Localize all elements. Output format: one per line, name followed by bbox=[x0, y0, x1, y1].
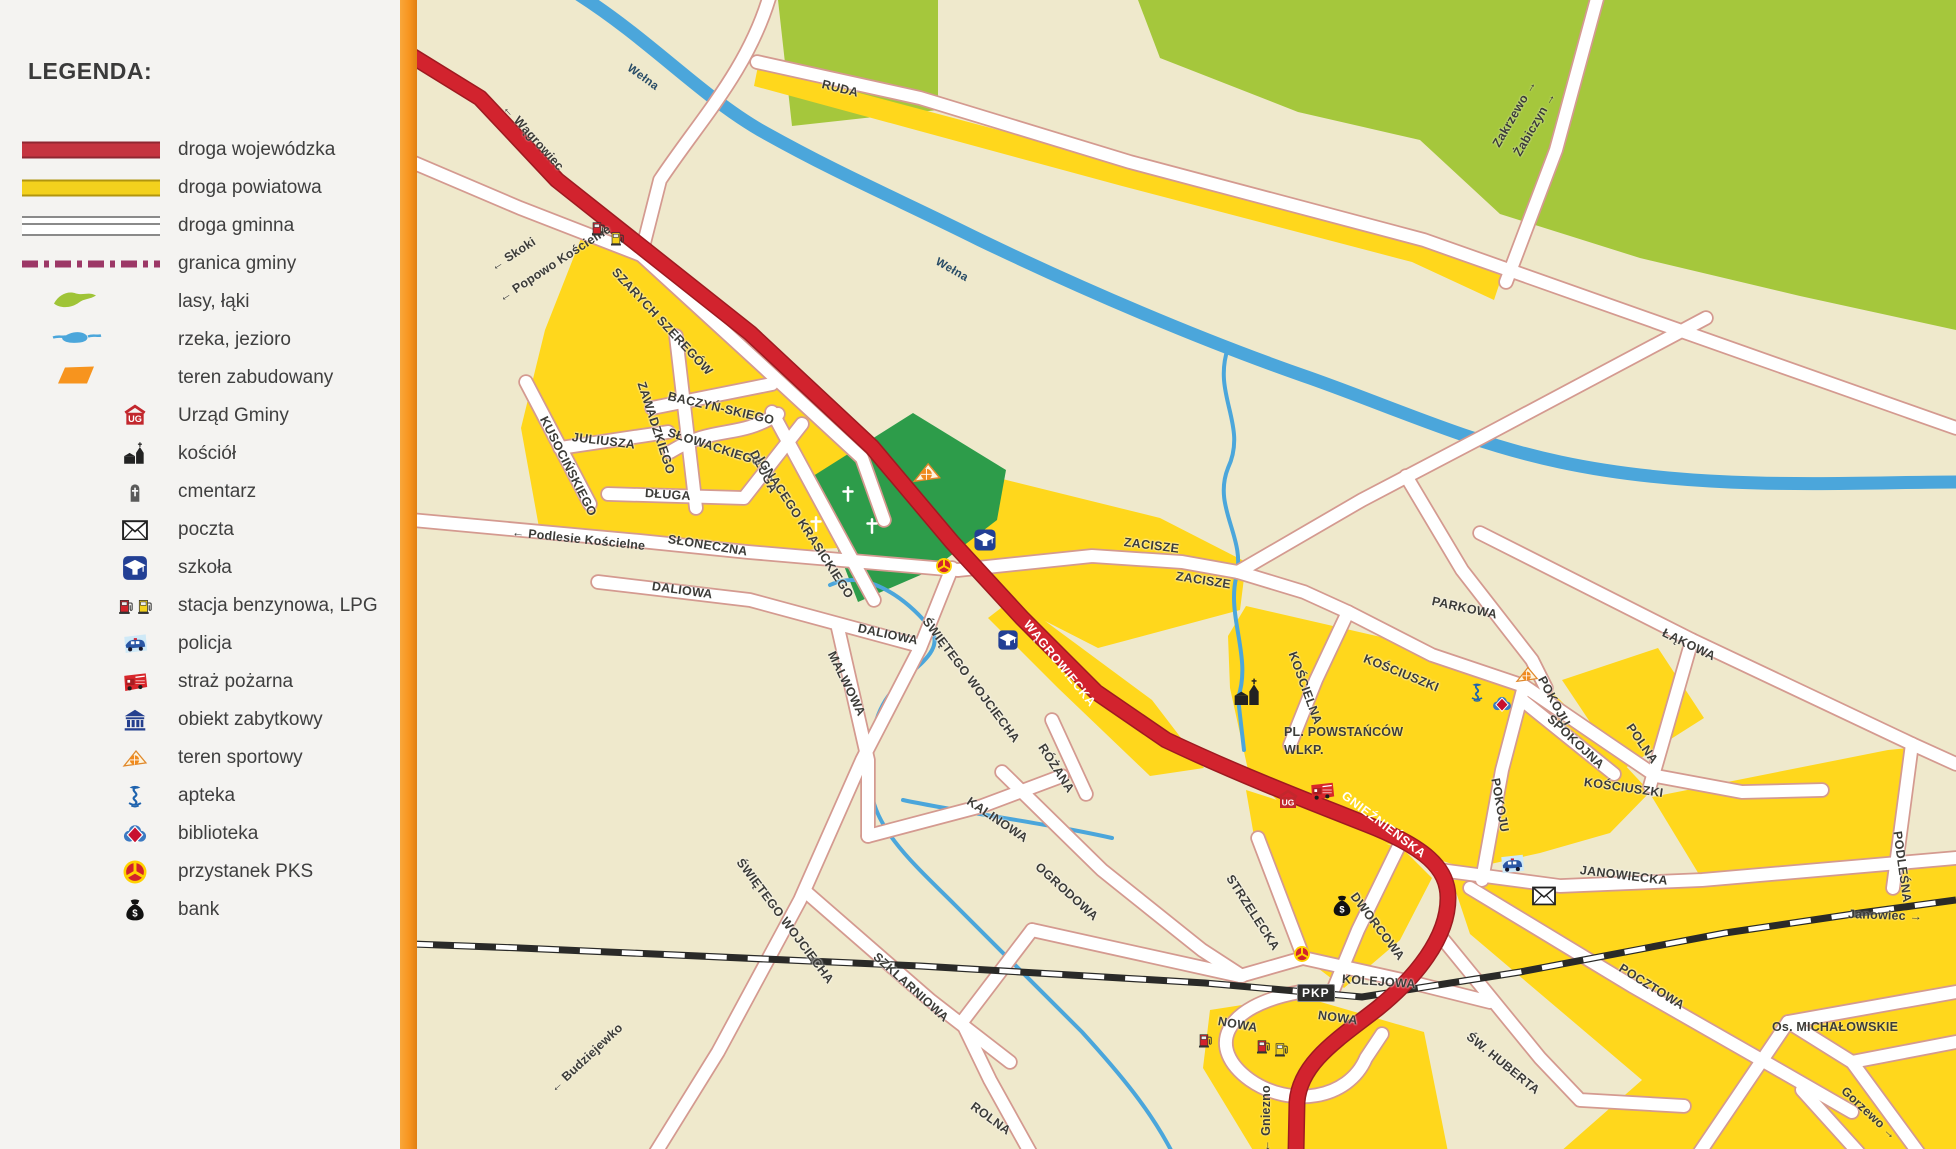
legend-item-label: bank bbox=[178, 899, 219, 921]
legend-item-label: Urząd Gminy bbox=[178, 405, 289, 427]
legend-item-policja: policja bbox=[0, 629, 400, 659]
map-edge-border bbox=[400, 0, 417, 1149]
road-powiatowa-swatch bbox=[22, 180, 160, 197]
swatch-water bbox=[52, 325, 102, 356]
legend-item-label: lasy, łąki bbox=[178, 291, 249, 313]
legend-item-ko-ci-: kościół bbox=[0, 439, 400, 469]
legend-item-label: stacja benzynowa, LPG bbox=[178, 595, 378, 617]
legend-item-label: obiekt zabytkowy bbox=[178, 709, 323, 731]
school-icon bbox=[118, 553, 152, 583]
legend-item-label: teren zabudowany bbox=[178, 367, 333, 389]
legend-item-label: apteka bbox=[178, 785, 235, 807]
pks-icon bbox=[118, 857, 152, 887]
legend-item-stra-po-arna: straż pożarna bbox=[0, 667, 400, 697]
legend-item-apteka: apteka bbox=[0, 781, 400, 811]
fuel-pair-icon bbox=[118, 591, 152, 621]
legend-item-droga-gminna: droga gminna bbox=[0, 211, 400, 241]
road-gminna-swatch bbox=[22, 216, 160, 236]
svg-text:UG: UG bbox=[128, 414, 142, 424]
legend-item-label: granica gminy bbox=[178, 253, 296, 275]
legend-item-granica-gminy: granica gminy bbox=[0, 249, 400, 279]
legend-item-przystanek-pks: przystanek PKS bbox=[0, 857, 400, 887]
svg-text:$: $ bbox=[132, 909, 138, 920]
legend-item-label: droga powiatowa bbox=[178, 177, 322, 199]
bank-icon: $ bbox=[118, 895, 152, 925]
legend-item-label: straż pożarna bbox=[178, 671, 293, 693]
legend-item-label: biblioteka bbox=[178, 823, 258, 845]
cemetery-icon bbox=[118, 477, 152, 507]
legend-item-label: cmentarz bbox=[178, 481, 256, 503]
legend-item-lasy-ki: lasy, łąki bbox=[0, 287, 400, 317]
post-icon bbox=[118, 515, 152, 545]
legend-title: LEGENDA: bbox=[28, 58, 152, 85]
monument-icon bbox=[118, 705, 152, 735]
map-page: ← WągrowiecWełnaWełnaRUDAZakrzewo →Żabic… bbox=[0, 0, 1956, 1149]
legend-item-label: kościół bbox=[178, 443, 236, 465]
legend-item-poczta: poczta bbox=[0, 515, 400, 545]
pharmacy-icon bbox=[118, 781, 152, 811]
legend-sidebar: LEGENDA: droga wojewódzkadroga powiatowa… bbox=[0, 0, 400, 1149]
library-icon bbox=[118, 819, 152, 849]
police-icon bbox=[118, 629, 152, 659]
legend-item-stacja-benzynowa-lpg: stacja benzynowa, LPG bbox=[0, 591, 400, 621]
legend-item-droga-wojew-dzka: droga wojewódzka bbox=[0, 135, 400, 165]
fire-icon bbox=[118, 667, 152, 697]
swatch-builtup bbox=[52, 363, 98, 394]
road-wojewodzka-swatch bbox=[22, 142, 160, 159]
legend-item-droga-powiatowa: droga powiatowa bbox=[0, 173, 400, 203]
legend-item-teren-zabudowany: teren zabudowany bbox=[0, 363, 400, 393]
legend-item-urz-d-gminy: UGUrząd Gminy bbox=[0, 401, 400, 431]
legend-item-label: rzeka, jezioro bbox=[178, 329, 291, 351]
legend-item-label: poczta bbox=[178, 519, 234, 541]
legend-item-label: policja bbox=[178, 633, 232, 655]
legend-item-cmentarz: cmentarz bbox=[0, 477, 400, 507]
legend-item-label: droga gminna bbox=[178, 215, 294, 237]
legend-item-label: droga wojewódzka bbox=[178, 139, 335, 161]
legend-item-rzeka-jezioro: rzeka, jezioro bbox=[0, 325, 400, 355]
legend-item-label: przystanek PKS bbox=[178, 861, 313, 883]
legend-item-biblioteka: biblioteka bbox=[0, 819, 400, 849]
map-canvas bbox=[412, 0, 1956, 1149]
legend-item-label: teren sportowy bbox=[178, 747, 303, 769]
legend-item-obiekt-zabytkowy: obiekt zabytkowy bbox=[0, 705, 400, 735]
legend-item-szko-a: szkoła bbox=[0, 553, 400, 583]
gmina-border-swatch bbox=[22, 261, 160, 268]
legend-item-teren-sportowy: teren sportowy bbox=[0, 743, 400, 773]
sport-icon bbox=[118, 743, 152, 773]
legend-item-bank: $bank bbox=[0, 895, 400, 925]
ug-icon: UG bbox=[118, 401, 152, 431]
legend-item-label: szkoła bbox=[178, 557, 232, 579]
church-icon bbox=[118, 439, 152, 469]
swatch-forest bbox=[52, 287, 98, 318]
